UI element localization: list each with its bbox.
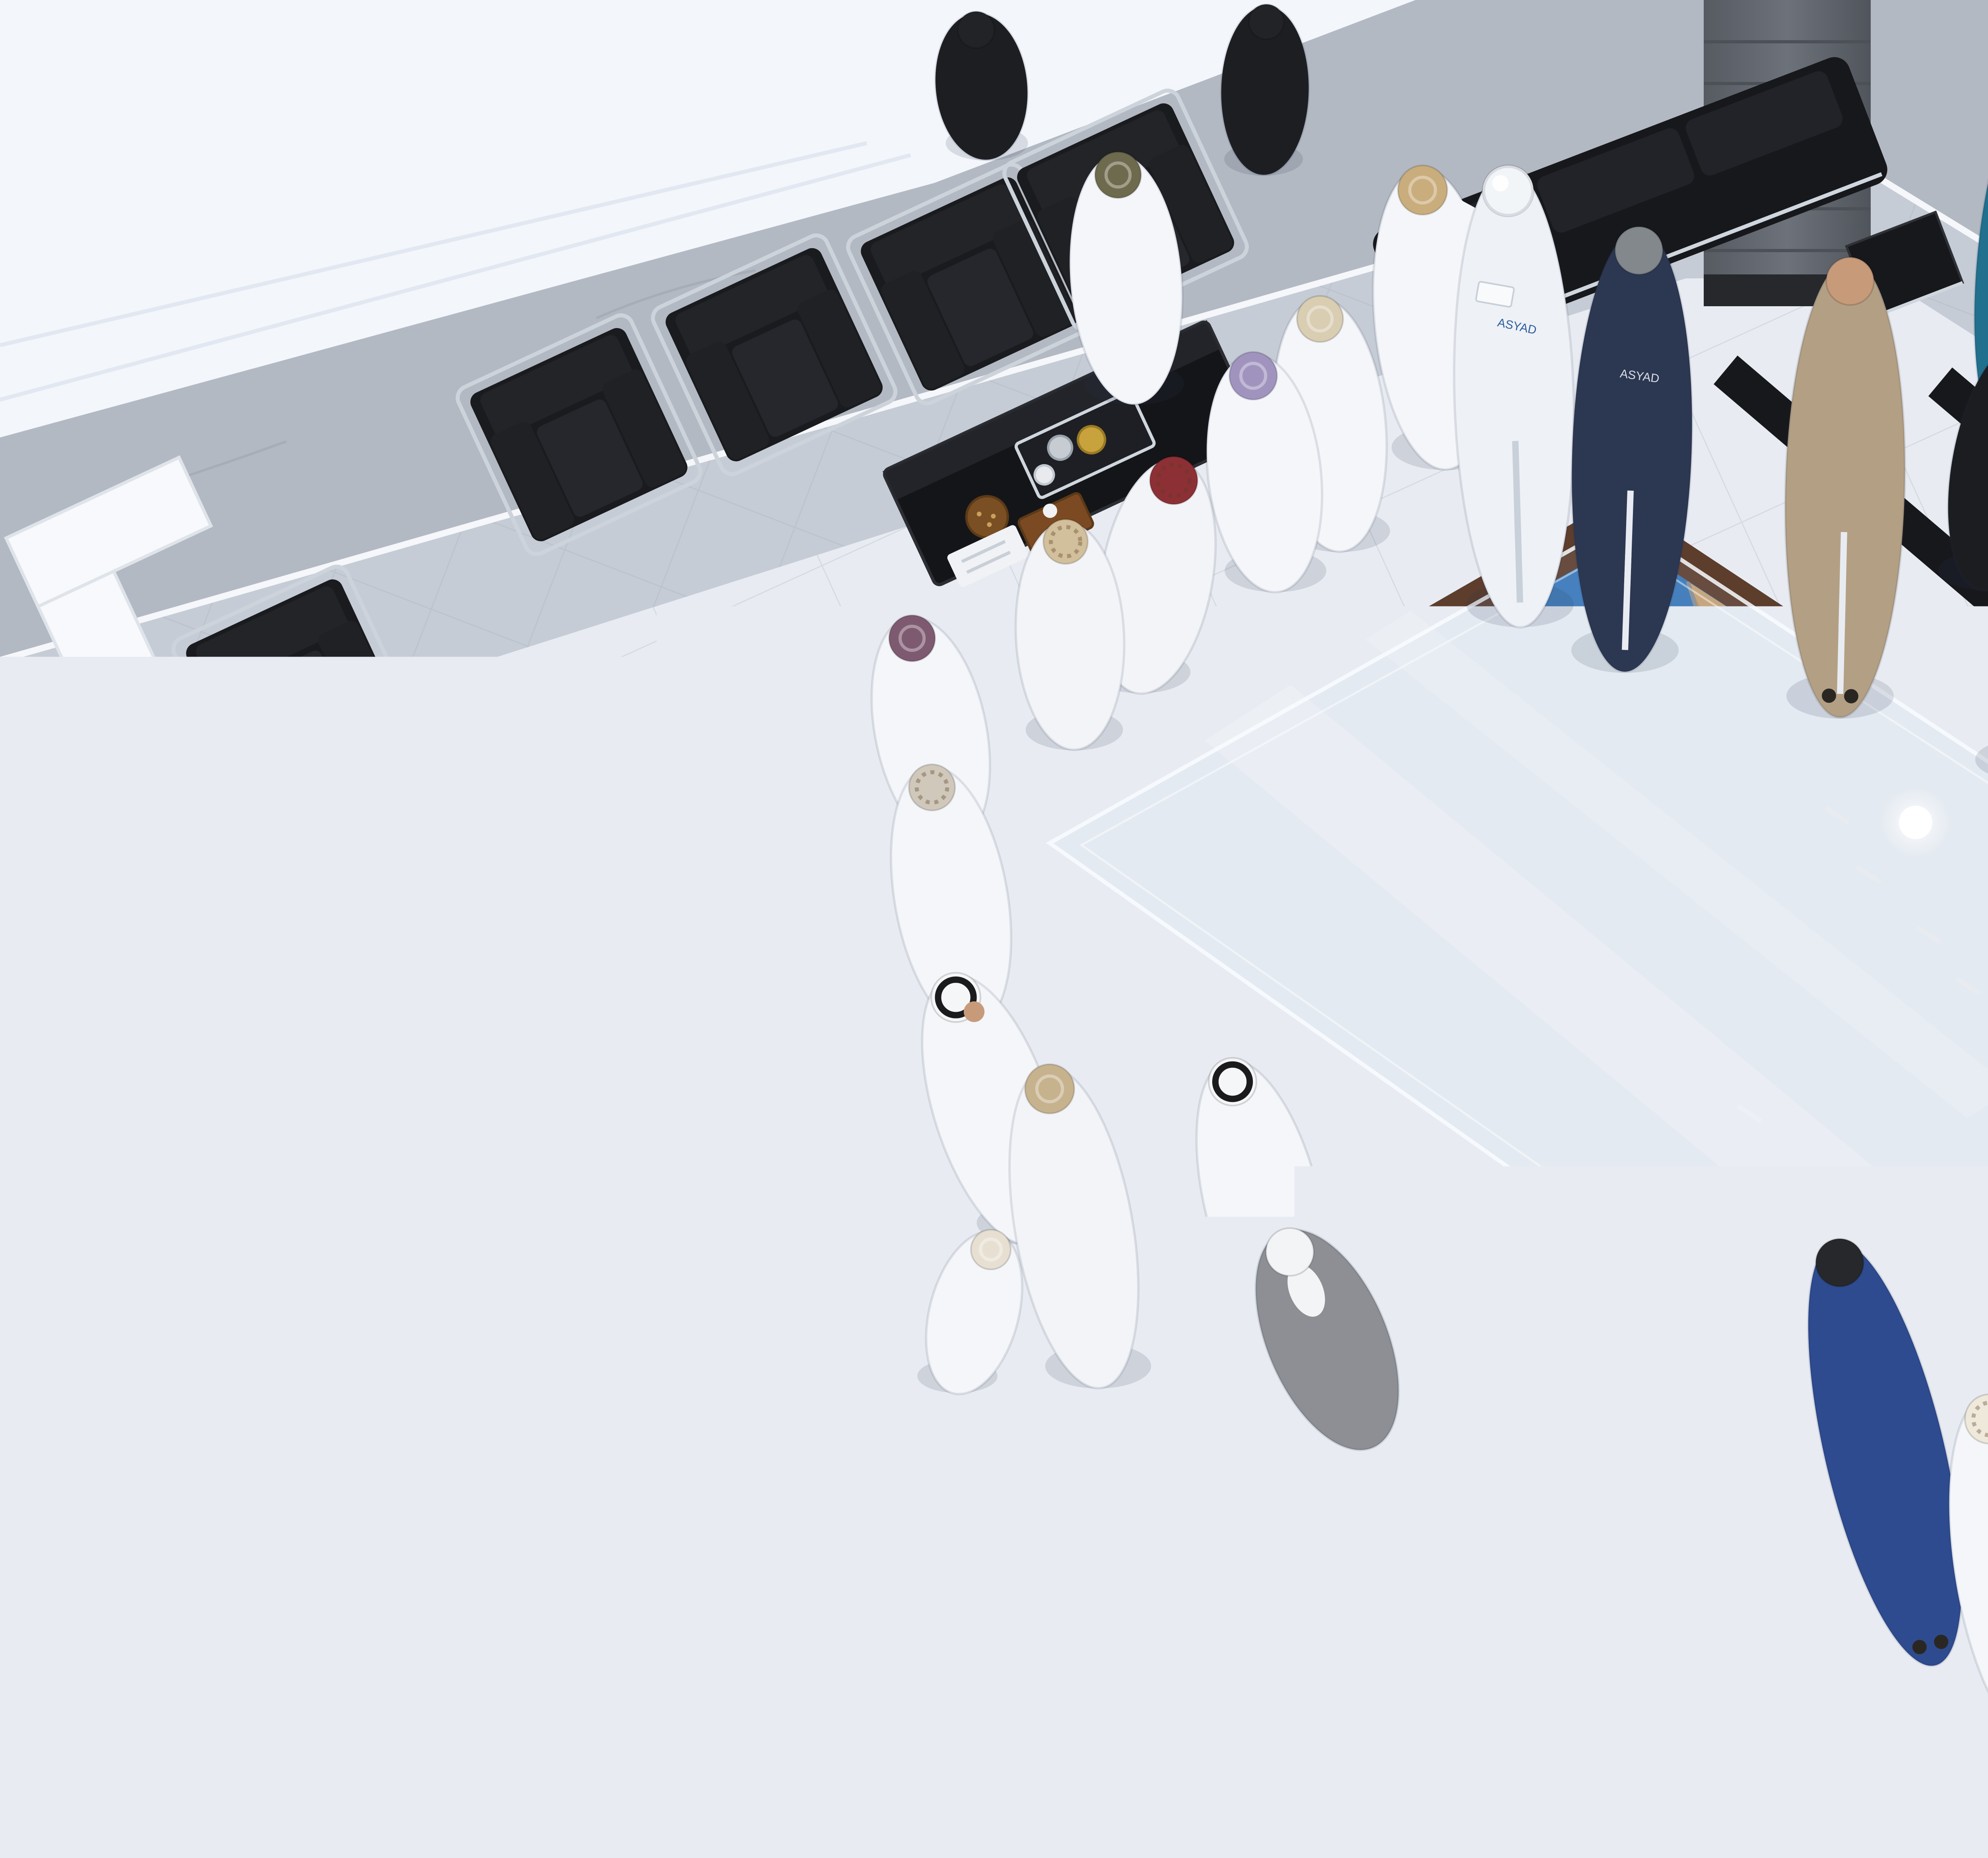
head-mussar <box>1320 1483 1371 1533</box>
head-mussar <box>889 615 935 661</box>
head-mussar <box>1398 165 1447 215</box>
blue-tumbler <box>702 1579 734 1611</box>
shoe <box>1822 688 1836 703</box>
shoe <box>1844 689 1858 704</box>
reflective-stripe <box>1625 554 1628 650</box>
pink-pen-cup <box>651 1530 685 1564</box>
small-plate <box>841 1712 876 1747</box>
head-hair <box>1816 1239 1864 1287</box>
reflective-stripe <box>1840 599 1842 694</box>
head-bald <box>1826 257 1874 305</box>
head-hair <box>958 12 994 48</box>
shoe <box>1934 1635 1948 1649</box>
head-shawl <box>1266 1228 1314 1276</box>
head-mussar <box>1229 352 1277 400</box>
shoe <box>1912 1640 1927 1654</box>
head-mussar <box>971 1230 1011 1269</box>
webcam <box>507 1572 527 1593</box>
head-hair <box>1615 227 1663 274</box>
reflective-stripe <box>1517 507 1520 602</box>
head-hair <box>1249 4 1284 39</box>
hardhat-highlight <box>1492 175 1508 191</box>
face <box>964 1001 984 1022</box>
head-mussar <box>1297 296 1343 342</box>
head-mussar <box>1095 152 1141 198</box>
clasped-hands <box>1337 1652 1353 1668</box>
head-mussar <box>1025 1064 1074 1114</box>
lamp-reflection-1 <box>1899 806 1932 839</box>
head-mussar <box>1590 1382 1641 1432</box>
cookie-bowl <box>879 1766 926 1813</box>
lobby-overhead-photo: ASYAD aruba <box>0 0 1988 1858</box>
dark-cup <box>683 1561 704 1581</box>
white-mug <box>812 1679 842 1709</box>
